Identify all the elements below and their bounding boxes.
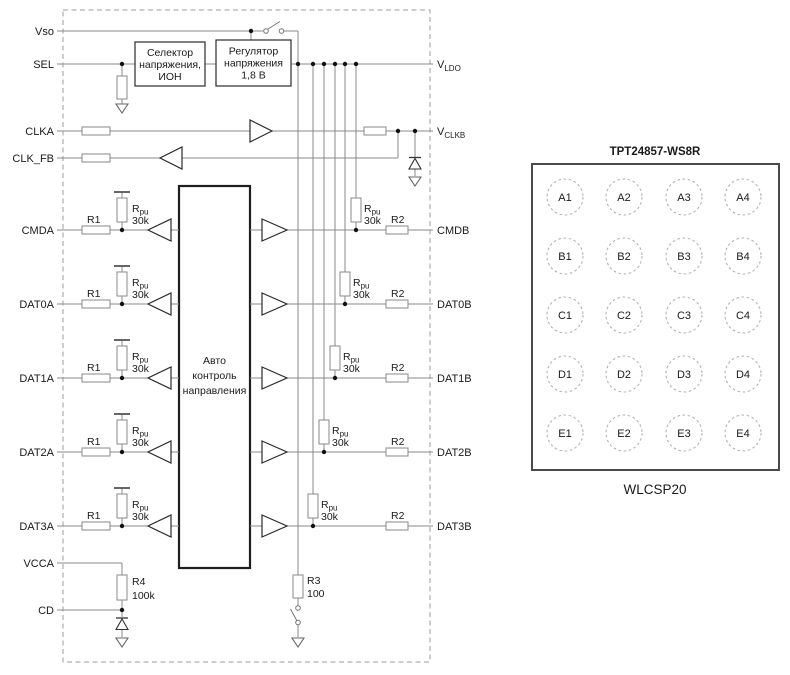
ball-label: E3 <box>677 428 690 440</box>
rpu-value-b: 30k <box>353 289 371 301</box>
selector-block-text-line2: напряжения, <box>139 59 201 71</box>
ball-label: C1 <box>558 310 572 322</box>
b-side-buffer <box>262 515 287 537</box>
r1-resistor <box>82 374 110 382</box>
sel-pulldown-resistor <box>117 76 127 99</box>
pin-label-vcca: VCCA <box>23 558 54 570</box>
auto-block-text-line3: направления <box>183 385 247 397</box>
ball-label: C3 <box>677 310 691 322</box>
selector-block-text-line3: ИОН <box>158 71 181 83</box>
pin-label-vldo: VLDO <box>437 59 461 73</box>
ball-label: D4 <box>736 369 750 381</box>
regulator-block-text-line3: 1,8 В <box>241 70 266 82</box>
ball-label: B3 <box>677 251 690 263</box>
rpu-value-b: 30k <box>343 363 361 375</box>
selector-block-text-line1: Селектор <box>147 47 193 59</box>
ball-label: D2 <box>617 369 631 381</box>
ball-label: A3 <box>677 192 690 204</box>
ball-label: A2 <box>617 192 630 204</box>
rpu-value-b: 30k <box>364 215 382 227</box>
r1-label: R1 <box>87 288 101 300</box>
r1-label: R1 <box>87 362 101 374</box>
pin-label-dat2b: DAT2B <box>437 447 472 459</box>
b-side-buffer <box>262 293 287 315</box>
pin-label-sel: SEL <box>33 59 54 71</box>
ball-label: D3 <box>677 369 691 381</box>
rpu-resistor-b <box>340 272 350 296</box>
r2-label: R2 <box>391 436 405 448</box>
rpu-resistor-a <box>117 346 127 370</box>
pin-label-vclkb: VCLKB <box>437 126 465 140</box>
rpu-value-a: 30k <box>132 289 150 301</box>
cd-esd-diode <box>116 618 128 630</box>
r1-label: R1 <box>87 436 101 448</box>
r2-resistor <box>386 300 408 308</box>
ball-label: E1 <box>558 428 571 440</box>
rpu-value-a: 30k <box>132 511 150 523</box>
pin-label-cd: CD <box>38 605 54 617</box>
pin-label-dat3b: DAT3B <box>437 521 472 533</box>
rpu-resistor-b <box>330 346 340 370</box>
rpu-resistor-a <box>117 198 127 222</box>
r2-resistor <box>386 448 408 456</box>
clkfb-buffer <box>160 147 182 169</box>
pin-label-dat0b: DAT0B <box>437 299 472 311</box>
pin-label-vso: Vso <box>35 26 54 38</box>
block-diagram: CMDACMDBR1R2Rpu30kRpu30kDAT0ADAT0BR1R2Rp… <box>0 0 790 675</box>
vclkb-esd-diode <box>409 158 421 170</box>
ball-label: E2 <box>617 428 630 440</box>
pin-label-dat1a: DAT1A <box>19 373 54 385</box>
r3-ground-switch <box>291 606 301 625</box>
rpu-value-b: 30k <box>321 511 339 523</box>
rpu-resistor-b <box>308 494 318 518</box>
r2-label: R2 <box>391 510 405 522</box>
a-side-buffer <box>148 515 171 537</box>
r1-label: R1 <box>87 510 101 522</box>
r1-resistor <box>82 300 110 308</box>
ground-symbol-cd <box>116 638 128 647</box>
pin-label-clka: CLKA <box>25 126 54 138</box>
a-side-buffer <box>148 441 171 463</box>
r2-label: R2 <box>391 362 405 374</box>
r2-label: R2 <box>391 288 405 300</box>
clka-buffer <box>250 120 272 142</box>
rpu-value-a: 30k <box>132 363 150 375</box>
a-side-buffer <box>148 367 171 389</box>
ball-label: B4 <box>736 251 749 263</box>
regulator-block-text-line2: напряжения <box>224 58 283 70</box>
pin-label-cmdb: CMDB <box>437 225 469 237</box>
ground-symbol-sel <box>116 104 128 113</box>
r2-label: R2 <box>391 214 405 226</box>
rpu-resistor-b <box>319 420 329 444</box>
vclkb-series-resistor <box>364 127 386 135</box>
pin-label-clk-fb: CLK_FB <box>12 153 54 165</box>
r3-value: 100 <box>307 588 325 600</box>
b-side-buffer <box>262 219 287 241</box>
r2-resistor <box>386 226 408 234</box>
r4-resistor <box>117 575 127 600</box>
a-side-buffer <box>148 293 171 315</box>
a-side-buffer <box>148 219 171 241</box>
rpu-resistor-a <box>117 420 127 444</box>
ball-label: E4 <box>736 428 749 440</box>
r2-resistor <box>386 374 408 382</box>
r1-resistor <box>82 226 110 234</box>
auto-block-text-line2: контроль <box>192 370 237 382</box>
clkfb-series-resistor <box>82 154 110 162</box>
pin-label-dat0a: DAT0A <box>19 299 54 311</box>
rpu-resistor-a <box>117 494 127 518</box>
ball-label: B2 <box>617 251 630 263</box>
r4-value: 100k <box>132 590 156 602</box>
figure-canvas: CMDACMDBR1R2Rpu30kRpu30kDAT0ADAT0BR1R2Rp… <box>0 0 790 675</box>
package-title: TPT24857-WS8R <box>610 146 701 158</box>
r2-resistor <box>386 522 408 530</box>
ground-symbol-r3 <box>292 638 304 647</box>
pin-label-dat1b: DAT1B <box>437 373 472 385</box>
r1-label: R1 <box>87 214 101 226</box>
ball-label: A4 <box>736 192 749 204</box>
package-diagram: TPT24857-WS8R A1A2A3A4B1B2B3B4C1C2C3C4D1… <box>532 146 779 497</box>
ball-label: B1 <box>558 251 571 263</box>
rpu-value-a: 30k <box>132 215 150 227</box>
package-caption: WLCSP20 <box>623 482 686 497</box>
clka-series-resistor <box>82 127 110 135</box>
rpu-value-b: 30k <box>332 437 350 449</box>
ball-label: D1 <box>558 369 572 381</box>
ball-label: C2 <box>617 310 631 322</box>
pin-label-cmda: CMDA <box>22 225 55 237</box>
rpu-value-a: 30k <box>132 437 150 449</box>
b-side-buffer <box>262 441 287 463</box>
r4-label: R4 <box>132 576 146 588</box>
vso-bypass-switch <box>264 22 284 34</box>
r1-resistor <box>82 522 110 530</box>
rpu-resistor-b <box>351 198 361 222</box>
ball-label: A1 <box>558 192 571 204</box>
r1-resistor <box>82 448 110 456</box>
auto-block-text-line1: Авто <box>203 355 226 367</box>
b-side-buffer <box>262 367 287 389</box>
ball-label: C4 <box>736 310 750 322</box>
pin-label-dat2a: DAT2A <box>19 447 54 459</box>
ground-symbol-vclkb <box>409 177 421 186</box>
rpu-resistor-a <box>117 272 127 296</box>
r3-resistor <box>293 575 303 598</box>
regulator-block-text-line1: Регулятор <box>229 46 279 58</box>
r3-label: R3 <box>307 575 321 587</box>
pin-label-dat3a: DAT3A <box>19 521 54 533</box>
